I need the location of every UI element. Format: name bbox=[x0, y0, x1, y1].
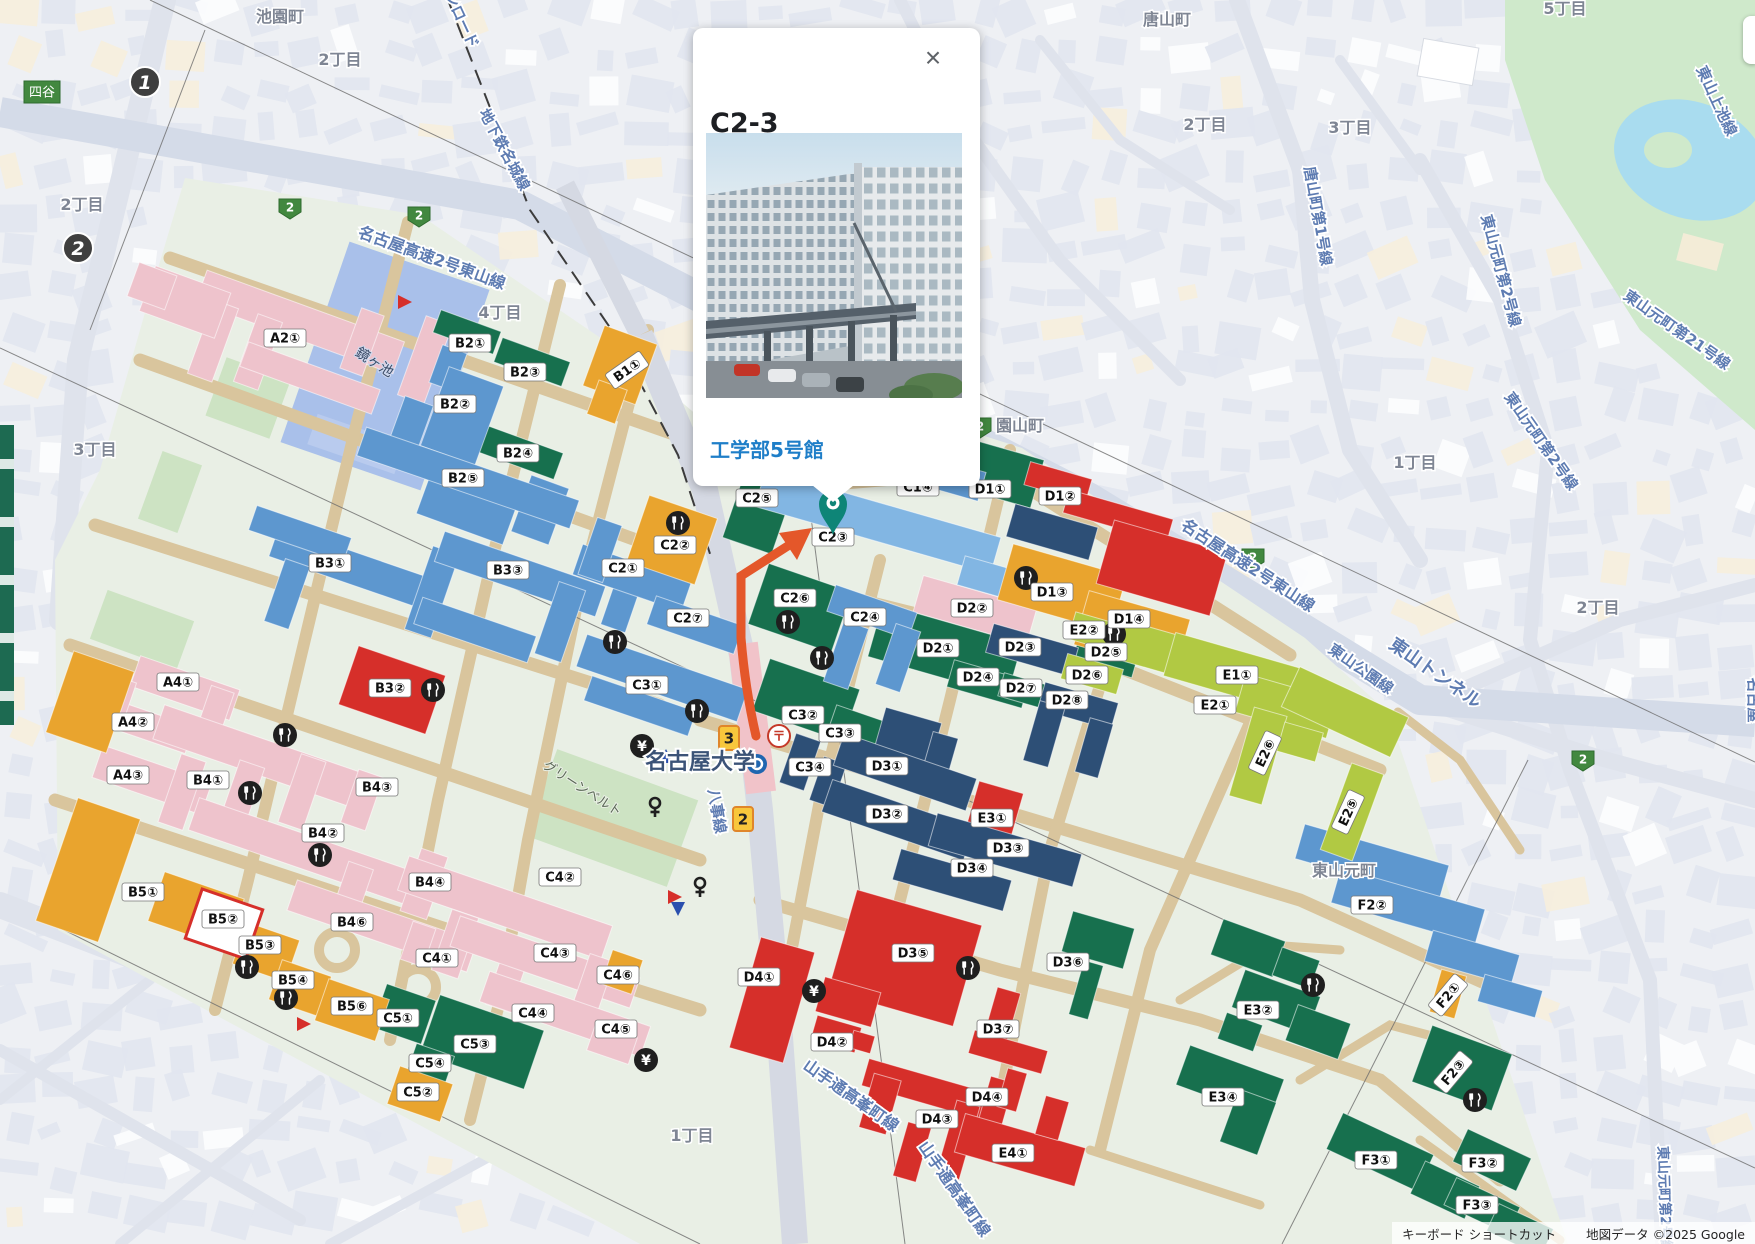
svg-text:C2⑤: C2⑤ bbox=[742, 492, 772, 507]
svg-text:B5②: B5② bbox=[208, 913, 238, 928]
city-block bbox=[624, 122, 669, 146]
building-label[interactable]: D4② bbox=[811, 1033, 853, 1051]
city-block bbox=[1047, 289, 1085, 306]
city-block bbox=[1719, 1000, 1748, 1030]
building-label[interactable]: D3⑥ bbox=[1047, 953, 1089, 971]
city-block bbox=[1551, 958, 1592, 971]
building-label[interactable]: A4③ bbox=[107, 766, 149, 784]
building-photo-illustration bbox=[706, 133, 962, 398]
city-block bbox=[2, 233, 34, 266]
city-block bbox=[589, 76, 618, 105]
city-block bbox=[1593, 1035, 1626, 1072]
svg-text:B5⑥: B5⑥ bbox=[337, 1000, 367, 1015]
city-block bbox=[1225, 150, 1243, 183]
building-label[interactable]: D1③ bbox=[1031, 583, 1073, 601]
building-label[interactable]: C3② bbox=[782, 706, 824, 724]
svg-text:E2②: E2② bbox=[1070, 624, 1099, 639]
svg-text:B5④: B5④ bbox=[278, 974, 308, 989]
restaurant-icon[interactable] bbox=[421, 678, 445, 702]
svg-text:B4②: B4② bbox=[308, 827, 338, 842]
building-label[interactable]: E3① bbox=[971, 809, 1013, 827]
building-label[interactable]: B4③ bbox=[356, 778, 398, 796]
svg-text:¥: ¥ bbox=[809, 984, 819, 1000]
svg-text:B3①: B3① bbox=[315, 557, 345, 572]
city-block bbox=[498, 230, 539, 260]
district-label: 東山元町 bbox=[1312, 861, 1376, 880]
map-data-attribution: 地図データ ©2025 Google bbox=[1586, 1224, 1745, 1243]
city-block bbox=[1642, 560, 1673, 583]
city-block bbox=[1717, 557, 1755, 575]
restaurant-icon[interactable] bbox=[238, 781, 262, 805]
city-block bbox=[549, 113, 571, 147]
svg-text:2: 2 bbox=[286, 200, 294, 214]
city-block bbox=[1425, 0, 1462, 27]
building-label[interactable]: B5① bbox=[122, 883, 164, 901]
city-block bbox=[1552, 348, 1581, 383]
city-block bbox=[1185, 411, 1205, 428]
building-label[interactable]: C5① bbox=[377, 1009, 419, 1027]
svg-text:C2④: C2④ bbox=[850, 611, 880, 626]
building-label[interactable]: D2④ bbox=[957, 668, 999, 686]
city-block bbox=[626, 157, 663, 179]
svg-text:A4①: A4① bbox=[163, 676, 193, 691]
city-block bbox=[1561, 805, 1579, 818]
svg-text:D2⑦: D2⑦ bbox=[1006, 682, 1037, 697]
city-block bbox=[597, 50, 614, 71]
building-label[interactable]: E2① bbox=[1194, 696, 1236, 714]
svg-text:C4⑥: C4⑥ bbox=[603, 969, 633, 984]
restaurant-icon[interactable] bbox=[603, 630, 627, 654]
building-label[interactable]: D3⑦ bbox=[977, 1020, 1019, 1038]
district-label: 2丁目 bbox=[1576, 598, 1619, 617]
city-block bbox=[1381, 357, 1424, 370]
district-label: 5丁目 bbox=[1543, 0, 1586, 18]
building-label[interactable]: D4① bbox=[738, 968, 780, 986]
building-label[interactable]: B4① bbox=[187, 771, 229, 789]
building-label[interactable]: F3① bbox=[1355, 1151, 1397, 1169]
city-block bbox=[1428, 238, 1452, 259]
building-label[interactable]: E3④ bbox=[1202, 1088, 1244, 1106]
svg-text:E4①: E4① bbox=[999, 1147, 1028, 1162]
svg-text:D2⑧: D2⑧ bbox=[1052, 694, 1083, 709]
city-block bbox=[1182, 325, 1200, 352]
city-block bbox=[1140, 88, 1161, 114]
svg-text:B4①: B4① bbox=[193, 774, 223, 789]
restaurant-icon[interactable] bbox=[308, 843, 332, 867]
svg-text:C5①: C5① bbox=[383, 1012, 413, 1027]
city-block bbox=[1677, 1155, 1715, 1172]
city-block bbox=[45, 29, 66, 57]
building-label[interactable]: C2④ bbox=[844, 608, 886, 626]
city-block bbox=[4, 792, 32, 819]
attribution-bar: キーボード ショートカット 地図データ ©2025 Google bbox=[1392, 1222, 1755, 1244]
city-block bbox=[1631, 675, 1674, 700]
district-label: 池園町 bbox=[256, 7, 304, 26]
svg-text:D3④: D3④ bbox=[957, 862, 988, 877]
svg-text:C4④: C4④ bbox=[518, 1007, 548, 1022]
district-label: 1丁目 bbox=[1393, 453, 1436, 472]
building-label[interactable]: B4⑥ bbox=[331, 913, 373, 931]
restaurant-icon[interactable] bbox=[776, 610, 800, 634]
city-block bbox=[121, 1037, 155, 1071]
restaurant-icon[interactable] bbox=[1463, 1088, 1487, 1112]
district-label: 2丁目 bbox=[318, 50, 361, 69]
building-label[interactable]: C2① bbox=[602, 559, 644, 577]
building-label[interactable]: D2⑥ bbox=[1066, 666, 1108, 684]
city-block bbox=[1645, 910, 1665, 943]
svg-text:F2②: F2② bbox=[1358, 899, 1387, 914]
building-label[interactable]: C5③ bbox=[454, 1035, 496, 1053]
restaurant-icon[interactable] bbox=[956, 956, 980, 980]
building-label[interactable]: B2⑤ bbox=[442, 469, 484, 487]
building-label[interactable]: C4③ bbox=[534, 944, 576, 962]
keyboard-shortcuts-button[interactable]: キーボード ショートカット bbox=[1402, 1224, 1556, 1243]
city-block bbox=[1182, 200, 1207, 226]
svg-text:D3②: D3② bbox=[872, 808, 903, 823]
city-block bbox=[1220, 448, 1251, 473]
building-label[interactable]: D2② bbox=[951, 599, 993, 617]
station-name-label: 名古屋大学 bbox=[645, 749, 755, 775]
city-block bbox=[0, 271, 31, 301]
building-label[interactable]: D2⑤ bbox=[1085, 643, 1127, 661]
svg-text:D2③: D2③ bbox=[1005, 641, 1036, 656]
district-label: 3丁目 bbox=[1328, 118, 1371, 137]
svg-text:E3④: E3④ bbox=[1209, 1091, 1238, 1106]
city-block bbox=[1346, 163, 1369, 190]
svg-text:C4①: C4① bbox=[422, 952, 452, 967]
building-label[interactable]: A4② bbox=[112, 713, 154, 731]
city-block bbox=[1351, 0, 1375, 22]
city-block bbox=[208, 1031, 239, 1061]
svg-text:D2②: D2② bbox=[957, 602, 988, 617]
svg-text:D2⑤: D2⑤ bbox=[1091, 646, 1122, 661]
restaurant-icon[interactable] bbox=[1301, 973, 1325, 997]
district-label: 3丁目 bbox=[73, 440, 116, 459]
city-block bbox=[1717, 604, 1755, 622]
city-block bbox=[1425, 528, 1467, 552]
building-label[interactable]: D4③ bbox=[916, 1110, 958, 1128]
building-label[interactable]: C3④ bbox=[789, 758, 831, 776]
side-panel-strip[interactable] bbox=[0, 425, 14, 725]
building-label[interactable]: C4⑥ bbox=[597, 966, 639, 984]
city-block bbox=[1554, 918, 1581, 941]
city-block bbox=[1098, 352, 1117, 379]
building-label[interactable]: D2① bbox=[917, 639, 959, 657]
building-label[interactable]: C2② bbox=[654, 536, 696, 554]
building-label[interactable]: B5③ bbox=[239, 936, 281, 954]
building-label[interactable]: C2⑦ bbox=[667, 609, 709, 627]
svg-text:B2①: B2① bbox=[455, 337, 485, 352]
city-block bbox=[6, 1207, 23, 1228]
city-block bbox=[0, 404, 31, 421]
svg-text:B5③: B5③ bbox=[245, 939, 275, 954]
city-block bbox=[41, 0, 75, 24]
building-label[interactable]: A2① bbox=[264, 329, 306, 347]
building-label[interactable]: B4④ bbox=[409, 873, 451, 891]
restaurant-icon[interactable] bbox=[685, 699, 709, 723]
building-label[interactable]: F3② bbox=[1462, 1154, 1504, 1172]
building-label[interactable]: E3② bbox=[1237, 1001, 1279, 1019]
building-label[interactable]: B3③ bbox=[487, 561, 529, 579]
park-pond-island bbox=[1644, 132, 1692, 168]
building-label[interactable]: B3② bbox=[369, 679, 411, 697]
svg-text:F3①: F3① bbox=[1362, 1154, 1391, 1169]
svg-text:D2①: D2① bbox=[923, 642, 954, 657]
building-label[interactable]: F3③ bbox=[1456, 1196, 1498, 1214]
building-label[interactable]: D3③ bbox=[987, 839, 1029, 857]
building-label[interactable]: A4① bbox=[157, 673, 199, 691]
svg-text:E3①: E3① bbox=[978, 812, 1007, 827]
svg-text:B5①: B5① bbox=[128, 886, 158, 901]
city-block bbox=[670, 0, 698, 30]
svg-text:C2①: C2① bbox=[608, 562, 638, 577]
district-label: 4丁目 bbox=[478, 303, 521, 322]
svg-text:D3③: D3③ bbox=[993, 842, 1024, 857]
building-label[interactable]: F2② bbox=[1351, 896, 1393, 914]
svg-text:B2④: B2④ bbox=[503, 447, 533, 462]
city-block bbox=[1180, 244, 1211, 276]
building-label[interactable]: D2③ bbox=[999, 638, 1041, 656]
city-block bbox=[1600, 550, 1630, 586]
city-block bbox=[1342, 562, 1378, 594]
svg-text:C2⑦: C2⑦ bbox=[673, 612, 703, 627]
svg-text:D4④: D4④ bbox=[972, 1091, 1003, 1106]
svg-text:B3②: B3② bbox=[375, 682, 405, 697]
city-block bbox=[1221, 236, 1246, 251]
building-label[interactable]: B4② bbox=[302, 824, 344, 842]
svg-text:D1②: D1② bbox=[1045, 490, 1076, 505]
svg-text:¥: ¥ bbox=[641, 1053, 651, 1069]
svg-text:A4②: A4② bbox=[118, 716, 148, 731]
restaurant-icon[interactable] bbox=[273, 723, 297, 747]
station-exit-badge: 3 bbox=[719, 726, 739, 750]
city-block bbox=[1717, 645, 1754, 671]
city-block bbox=[758, 5, 783, 20]
city-block bbox=[1258, 440, 1290, 460]
city-block bbox=[1182, 429, 1207, 458]
fee-icon[interactable]: ¥ bbox=[802, 979, 826, 1003]
city-block bbox=[1013, 362, 1035, 375]
svg-text:C2⑥: C2⑥ bbox=[780, 592, 810, 607]
svg-text:A2①: A2① bbox=[270, 332, 300, 347]
city-block bbox=[254, 41, 279, 57]
building-label[interactable]: C5④ bbox=[409, 1054, 451, 1072]
building-label[interactable]: C2⑥ bbox=[774, 589, 816, 607]
place-badge: 四谷 bbox=[24, 81, 60, 103]
svg-text:D4②: D4② bbox=[817, 1036, 848, 1051]
city-block bbox=[1254, 268, 1291, 300]
city-block bbox=[1091, 442, 1129, 474]
svg-text:B2③: B2③ bbox=[510, 366, 540, 381]
svg-text:C2②: C2② bbox=[660, 539, 690, 554]
svg-text:2: 2 bbox=[71, 238, 84, 260]
city-block bbox=[0, 963, 33, 986]
city-block bbox=[1715, 1155, 1755, 1187]
city-block bbox=[1675, 633, 1712, 670]
building-label[interactable]: C4④ bbox=[512, 1004, 554, 1022]
city-block bbox=[1140, 37, 1160, 51]
city-block bbox=[1598, 950, 1631, 984]
svg-text:E3②: E3② bbox=[1244, 1004, 1273, 1019]
district-label: 1丁目 bbox=[670, 1126, 713, 1145]
svg-text:C5③: C5③ bbox=[460, 1038, 490, 1053]
restaurant-icon[interactable] bbox=[810, 646, 834, 670]
building-label[interactable]: B2③ bbox=[504, 363, 546, 381]
svg-text:D3①: D3① bbox=[872, 760, 903, 775]
city-block bbox=[1094, 197, 1118, 231]
city-block bbox=[1388, 398, 1420, 414]
city-block bbox=[1463, 557, 1501, 589]
building-label[interactable]: D3⑤ bbox=[892, 944, 934, 962]
svg-text:B4④: B4④ bbox=[415, 876, 445, 891]
svg-text:C3②: C3② bbox=[788, 709, 818, 724]
svg-text:〒: 〒 bbox=[772, 730, 785, 745]
building-label[interactable]: B2④ bbox=[497, 444, 539, 462]
close-icon[interactable]: × bbox=[919, 44, 947, 72]
svg-text:B3③: B3③ bbox=[493, 564, 523, 579]
building-label[interactable]: C5② bbox=[397, 1083, 439, 1101]
building-label[interactable]: D3② bbox=[866, 805, 908, 823]
svg-text:B2⑤: B2⑤ bbox=[448, 472, 478, 487]
city-block bbox=[1593, 482, 1629, 517]
svg-text:C5④: C5④ bbox=[415, 1057, 445, 1072]
svg-text:1: 1 bbox=[138, 72, 151, 94]
city-block bbox=[1131, 278, 1160, 308]
svg-text:C4②: C4② bbox=[545, 871, 575, 886]
building-label[interactable]: B5④ bbox=[272, 971, 314, 989]
numbered-marker[interactable]: 2 bbox=[63, 233, 93, 263]
svg-text:2: 2 bbox=[738, 810, 748, 828]
restaurant-icon[interactable] bbox=[235, 955, 259, 979]
fee-icon[interactable]: ¥ bbox=[634, 1048, 658, 1072]
city-block bbox=[1559, 1073, 1577, 1099]
building-label[interactable]: D1② bbox=[1039, 487, 1081, 505]
city-block bbox=[1517, 170, 1541, 182]
building-label[interactable]: B5② bbox=[202, 910, 244, 928]
building-label[interactable]: C4② bbox=[539, 868, 581, 886]
city-block bbox=[1716, 873, 1755, 910]
city-block bbox=[1548, 551, 1589, 578]
city-block bbox=[1636, 481, 1670, 515]
district-label: 唐山町 bbox=[1143, 10, 1191, 29]
city-block bbox=[1591, 1158, 1634, 1189]
city-block bbox=[132, 248, 157, 265]
svg-text:B4③: B4③ bbox=[362, 781, 392, 796]
building-label[interactable]: E4① bbox=[992, 1144, 1034, 1162]
city-block bbox=[169, 1045, 194, 1074]
svg-text:C5②: C5② bbox=[403, 1086, 433, 1101]
building-label[interactable]: D3④ bbox=[951, 859, 993, 877]
city-block bbox=[1168, 42, 1211, 74]
district-label: 2丁目 bbox=[60, 195, 103, 214]
svg-text:2: 2 bbox=[1579, 752, 1587, 766]
city-block bbox=[1220, 76, 1243, 112]
city-block bbox=[505, 49, 536, 66]
svg-text:C3①: C3① bbox=[632, 679, 662, 694]
city-block bbox=[336, 1158, 361, 1183]
svg-text:D1④: D1④ bbox=[1114, 613, 1145, 628]
city-block bbox=[1341, 354, 1383, 392]
city-block bbox=[0, 0, 39, 26]
info-card: × C2-3 bbox=[693, 28, 980, 486]
svg-text:C3③: C3③ bbox=[825, 727, 855, 742]
svg-text:D3⑤: D3⑤ bbox=[898, 947, 929, 962]
city-block bbox=[0, 204, 37, 232]
building-photo[interactable] bbox=[706, 133, 962, 398]
svg-text:C4③: C4③ bbox=[540, 947, 570, 962]
building-label[interactable]: C3③ bbox=[819, 724, 861, 742]
building-label[interactable]: B2② bbox=[434, 395, 476, 413]
building-label[interactable]: B2① bbox=[449, 334, 491, 352]
building-link[interactable]: 工学部5号館 bbox=[710, 434, 824, 463]
post-office-icon[interactable]: 〒 bbox=[768, 725, 790, 747]
numbered-marker[interactable]: 1 bbox=[130, 67, 160, 97]
svg-text:F3②: F3② bbox=[1469, 1157, 1498, 1172]
svg-text:D4①: D4① bbox=[744, 971, 775, 986]
svg-text:A4③: A4③ bbox=[113, 769, 143, 784]
svg-text:D1③: D1③ bbox=[1037, 586, 1068, 601]
restaurant-icon[interactable] bbox=[274, 986, 298, 1010]
building-label[interactable]: C4① bbox=[416, 949, 458, 967]
svg-text:D2⑥: D2⑥ bbox=[1072, 669, 1103, 684]
building-label[interactable]: E2② bbox=[1063, 621, 1105, 639]
city-block bbox=[1307, 0, 1333, 17]
svg-text:D4③: D4③ bbox=[922, 1113, 953, 1128]
svg-text:3: 3 bbox=[724, 729, 734, 747]
city-block bbox=[1520, 198, 1542, 214]
city-block bbox=[421, 80, 452, 104]
road-label: 名古屋 bbox=[1745, 677, 1755, 722]
city-block bbox=[1179, 83, 1210, 112]
city-block bbox=[335, 77, 370, 90]
city-block bbox=[1522, 916, 1541, 937]
svg-text:E1①: E1① bbox=[1223, 669, 1252, 684]
building-label[interactable]: B3① bbox=[309, 554, 351, 572]
building-label[interactable]: D2⑧ bbox=[1046, 691, 1088, 709]
city-block bbox=[1638, 387, 1679, 426]
building-label[interactable]: C2⑤ bbox=[736, 489, 778, 507]
map-control[interactable] bbox=[1743, 16, 1755, 64]
district-label: 2丁目 bbox=[1183, 115, 1226, 134]
svg-text:D3⑥: D3⑥ bbox=[1053, 956, 1084, 971]
district-label: 園山町 bbox=[996, 416, 1044, 435]
building-label[interactable]: D4④ bbox=[966, 1088, 1008, 1106]
city-block bbox=[1265, 410, 1289, 422]
svg-text:D2④: D2④ bbox=[963, 671, 994, 686]
card-pointer bbox=[812, 485, 854, 502]
city-block bbox=[1311, 400, 1327, 413]
restaurant-icon[interactable] bbox=[666, 511, 690, 535]
city-block bbox=[44, 1198, 74, 1213]
city-block bbox=[258, 112, 275, 141]
station-exit-badge: 2 bbox=[733, 807, 753, 831]
building-label[interactable]: B5⑥ bbox=[331, 997, 373, 1015]
city-block bbox=[133, 1077, 155, 1113]
svg-text:2: 2 bbox=[415, 208, 423, 222]
building-label[interactable]: D3① bbox=[866, 757, 908, 775]
svg-text:C4⑤: C4⑤ bbox=[601, 1023, 631, 1038]
svg-text:D1①: D1① bbox=[975, 483, 1006, 498]
building-label[interactable]: C4⑤ bbox=[595, 1020, 637, 1038]
building-label[interactable]: D2⑦ bbox=[1000, 679, 1042, 697]
svg-text:C3④: C3④ bbox=[795, 761, 825, 776]
building-label[interactable]: D1④ bbox=[1108, 610, 1150, 628]
building-label[interactable]: E1① bbox=[1216, 666, 1258, 684]
city-block bbox=[1466, 473, 1498, 503]
building-label[interactable]: C3① bbox=[626, 676, 668, 694]
svg-text:D3⑦: D3⑦ bbox=[983, 1023, 1014, 1038]
city-block bbox=[1137, 203, 1171, 234]
